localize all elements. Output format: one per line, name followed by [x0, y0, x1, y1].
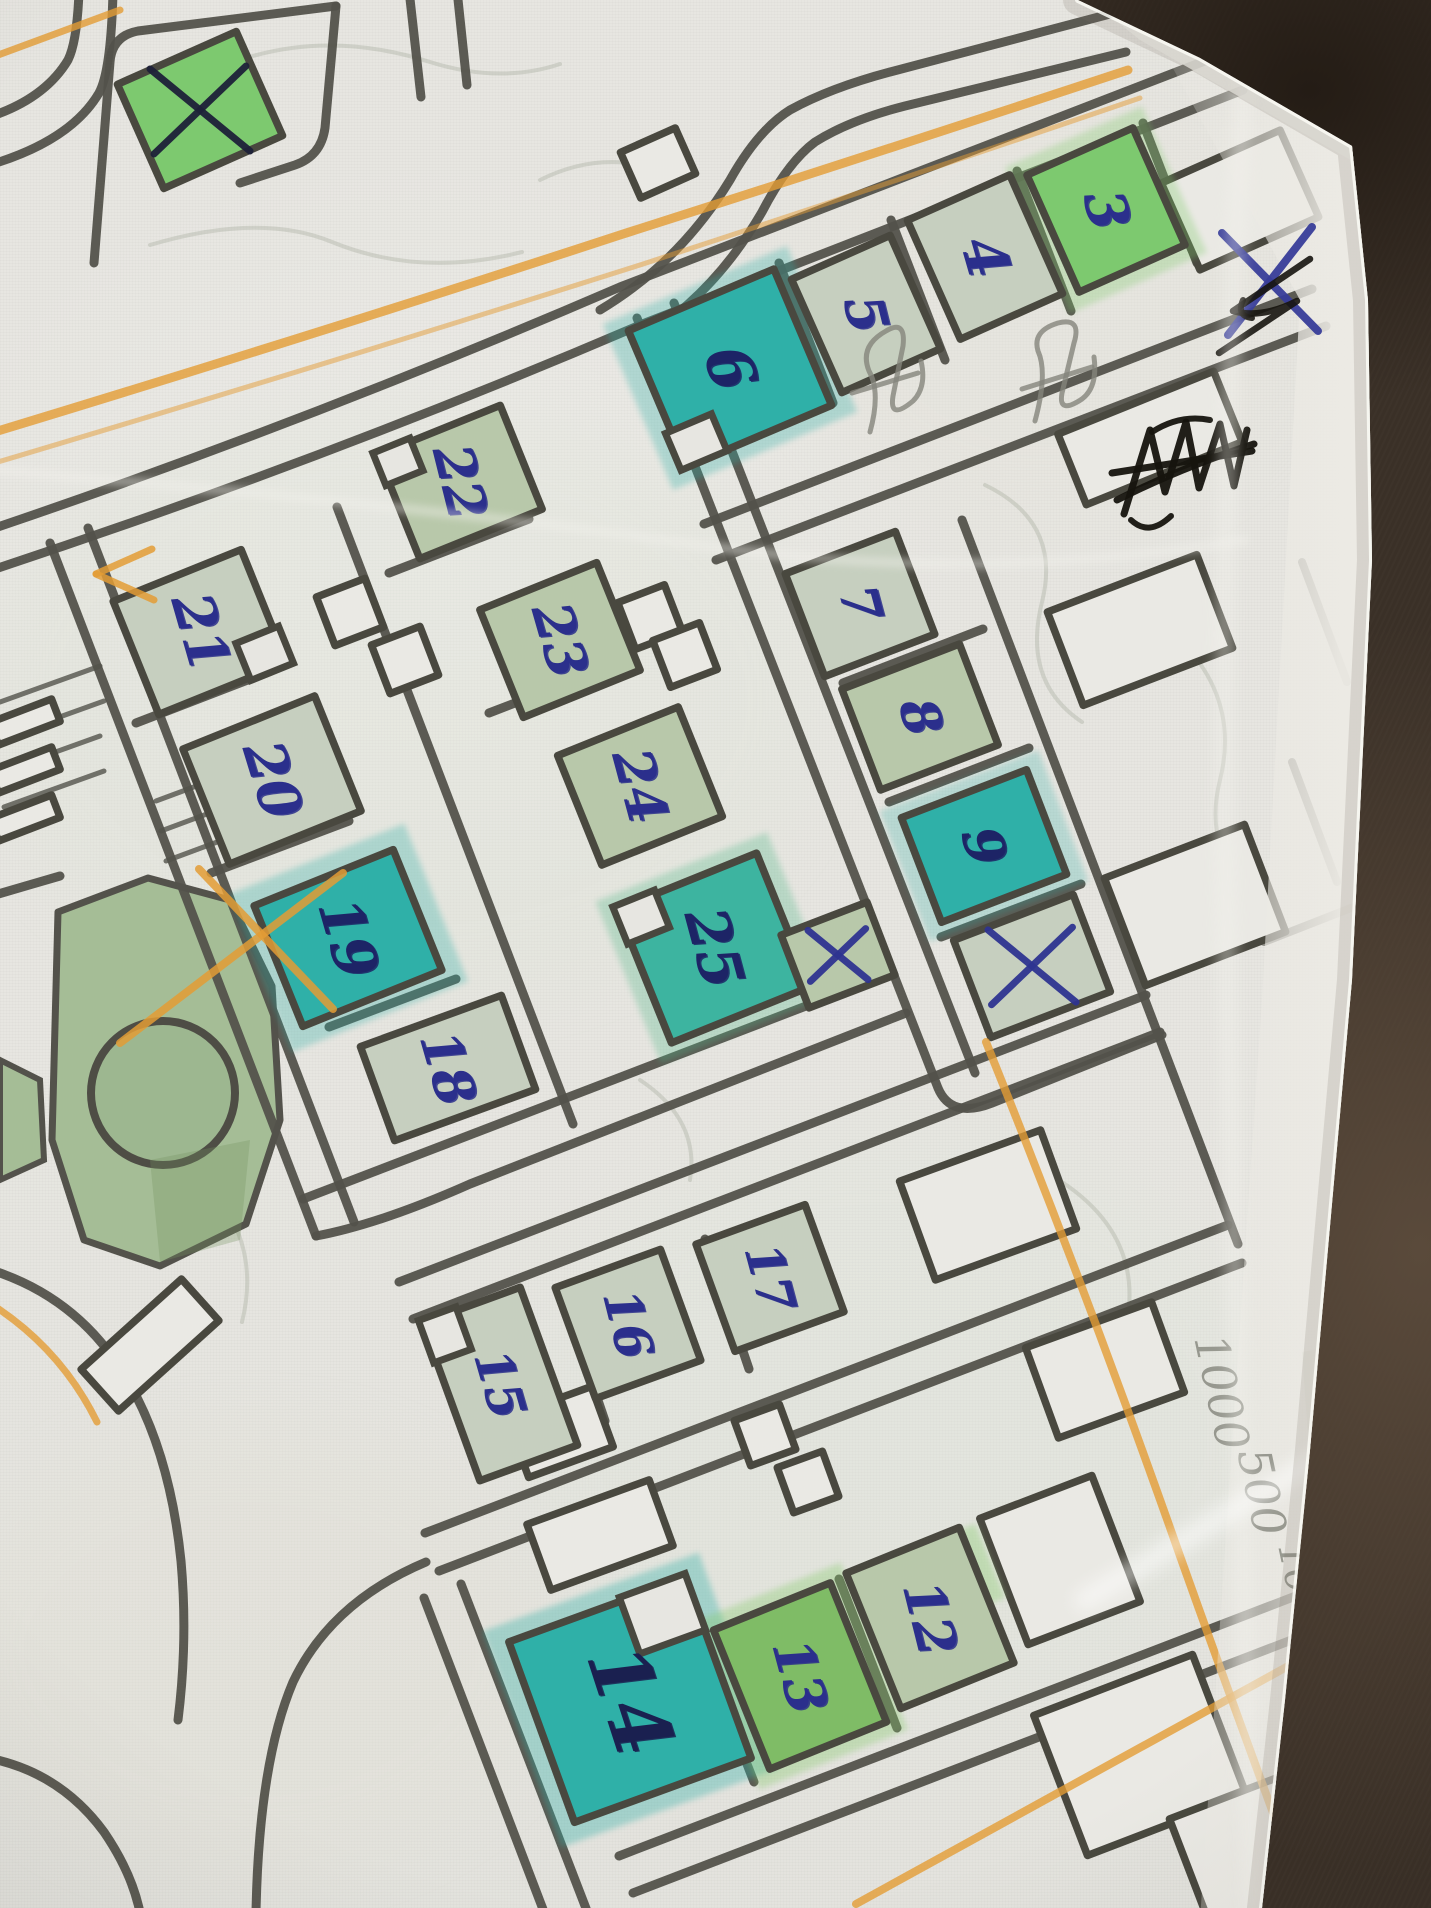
park-shade: [150, 1140, 250, 1262]
contour-line: [150, 228, 522, 263]
building-unlabeled: [734, 1404, 796, 1466]
road: [0, 0, 79, 118]
building-unlabeled: [777, 1451, 839, 1513]
paper-map: 3344556677889921212222232320202424191925…: [0, 0, 1431, 1908]
park-layer: [0, 878, 280, 1266]
city-map-drawing: 3344556677889921212222232320202424191925…: [0, 0, 1431, 1908]
park-area-small: [0, 1060, 44, 1180]
road-faint: [1293, 1545, 1425, 1639]
building-unlabeled: [620, 128, 695, 198]
road: [0, 876, 60, 897]
building-unlabeled: [1047, 555, 1232, 706]
black-crossout-scribble: [1131, 516, 1171, 528]
orange-line-topleft: [0, 10, 120, 58]
road: [457, 0, 467, 85]
contour-line: [640, 1080, 691, 1180]
road: [0, 0, 113, 166]
road: [409, 0, 421, 97]
map-photo: 3344556677889921212222232320202424191925…: [0, 0, 1431, 1908]
contour-line: [240, 45, 560, 73]
park-circle: [91, 1021, 235, 1165]
